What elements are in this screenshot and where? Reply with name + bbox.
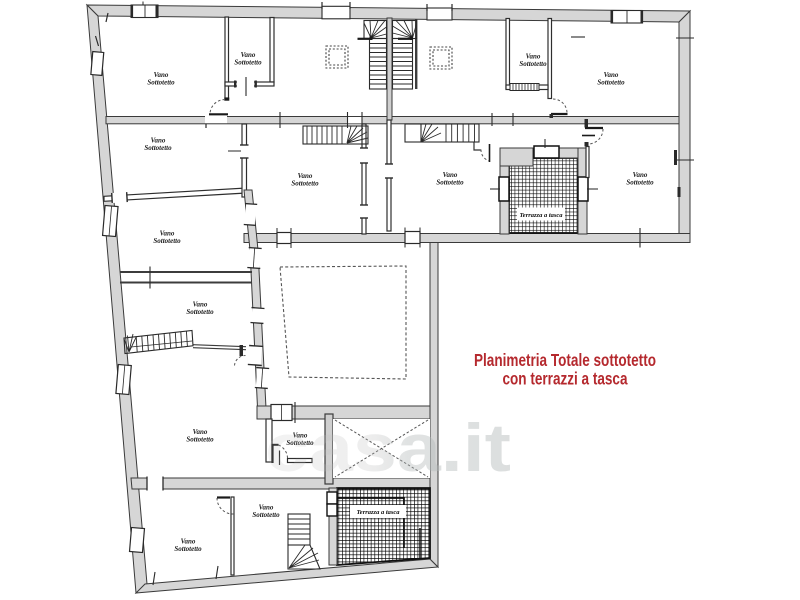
svg-text:Planimetria Totale sottotetto: Planimetria Totale sottotetto	[474, 350, 656, 370]
svg-text:casa.it: casa.it	[265, 410, 511, 486]
svg-text:Terrazza a tasca: Terrazza a tasca	[519, 212, 563, 219]
svg-text:Terrazza a tasca: Terrazza a tasca	[356, 509, 400, 516]
svg-text:con terrazzi a tasca: con terrazzi a tasca	[503, 369, 628, 389]
